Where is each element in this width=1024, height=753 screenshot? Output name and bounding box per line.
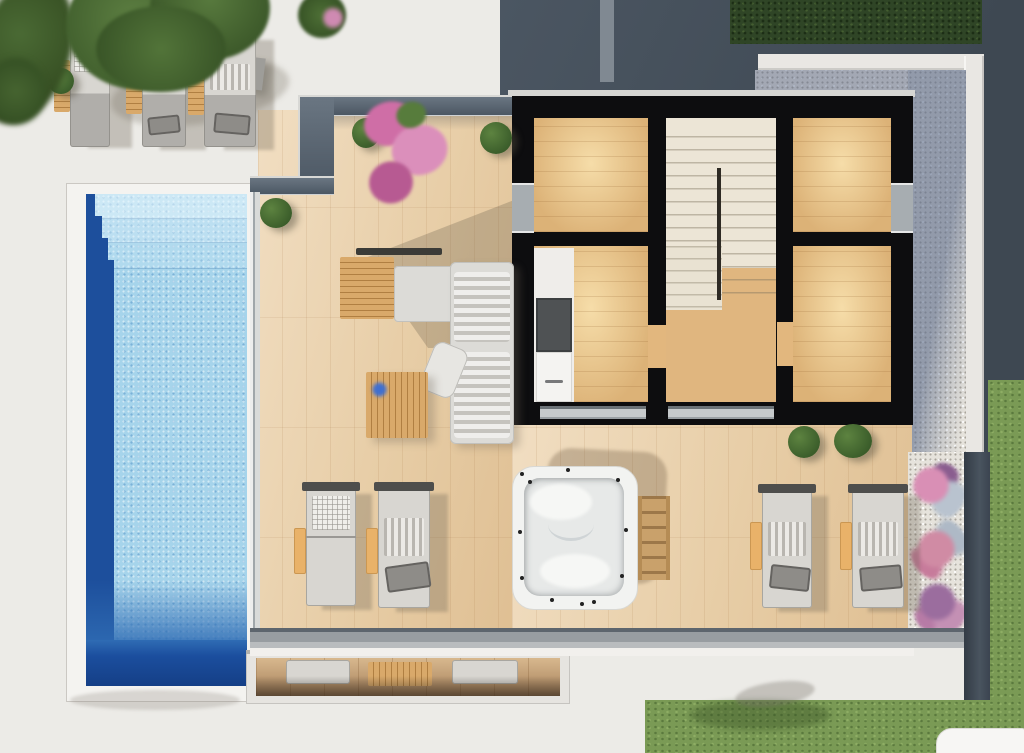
staircase-center-rail xyxy=(717,168,721,300)
table-plant-blue xyxy=(371,381,388,398)
window-east xyxy=(891,183,913,233)
room-top-left xyxy=(534,118,648,232)
garden-table-below xyxy=(936,728,1024,753)
towel xyxy=(840,522,852,570)
lounger-cushion xyxy=(858,522,898,556)
room-top-right xyxy=(793,118,891,232)
curb-top xyxy=(758,54,984,70)
hot-tub-seat xyxy=(540,554,610,588)
lounger-bag xyxy=(213,112,251,135)
lounger-seam xyxy=(306,536,356,538)
glass-railing-poolside xyxy=(250,192,260,648)
pool-depth-transition xyxy=(86,580,247,642)
potted-bush xyxy=(480,122,512,154)
kitchen-counter-handle xyxy=(545,380,563,383)
lounger-headbar xyxy=(302,482,360,491)
hot-tub-jets xyxy=(520,472,524,476)
curb-right xyxy=(964,56,984,456)
tree-canopy xyxy=(96,6,226,92)
lounger-bag xyxy=(859,564,903,592)
balcony-inner-shadow xyxy=(256,676,560,696)
glass-railing-corner-horizontal xyxy=(250,176,334,195)
lounger-cushion xyxy=(384,518,424,556)
lounger-headbar xyxy=(758,484,816,493)
door-opening xyxy=(648,325,666,368)
gravel-east-shadow xyxy=(908,70,966,458)
hot-tub-water-arc xyxy=(548,508,594,541)
shrub-blossom xyxy=(322,4,344,32)
glass-door xyxy=(668,406,774,419)
lawn-right xyxy=(988,380,1024,753)
glass-railing-bottom-right xyxy=(908,628,968,648)
bench-back-rail xyxy=(356,248,442,255)
lounger-headbar xyxy=(374,482,434,491)
hedge xyxy=(730,0,982,44)
kitchen-cooktop xyxy=(536,298,572,352)
terrace-rim-bottom xyxy=(250,648,914,656)
potted-bush xyxy=(788,426,820,458)
towel xyxy=(294,528,306,574)
lounger-bag xyxy=(147,114,181,135)
lounger-cushion xyxy=(768,522,806,556)
lounger-pillow xyxy=(312,496,350,530)
pool-step-2 xyxy=(86,218,247,243)
potted-bush xyxy=(834,424,872,458)
paving-light-band xyxy=(600,0,614,82)
floor-plan-render xyxy=(0,0,1024,753)
towel xyxy=(750,522,762,570)
flower-cluster xyxy=(912,462,966,520)
lounger-headbar xyxy=(848,484,908,493)
towel xyxy=(366,528,378,574)
hot-tub-ladder xyxy=(638,496,670,580)
lounger-bag xyxy=(769,564,811,592)
room-bottom-right xyxy=(793,246,891,402)
kitchen-counter xyxy=(536,352,572,402)
outdoor-bench xyxy=(340,257,394,319)
door-opening xyxy=(777,322,793,366)
window-west xyxy=(512,183,534,233)
glass-door xyxy=(540,406,646,419)
potted-bush xyxy=(260,198,292,228)
house xyxy=(512,96,913,425)
pool-step-1 xyxy=(86,194,247,219)
glass-railing-bottom xyxy=(250,628,914,648)
sofa-cushion xyxy=(454,272,510,342)
staircase-lower-flight xyxy=(666,246,722,310)
plant-shadow-on-path xyxy=(70,690,240,710)
pool-deep-end xyxy=(86,640,247,686)
flower-cluster xyxy=(912,574,968,636)
